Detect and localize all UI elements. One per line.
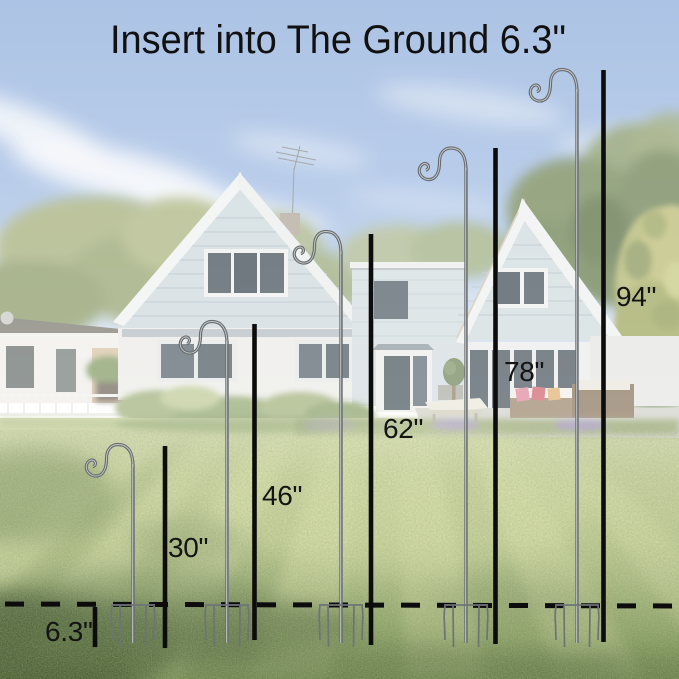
svg-text:30": 30"	[168, 532, 208, 563]
svg-text:46": 46"	[262, 480, 302, 511]
svg-text:6.3": 6.3"	[45, 616, 93, 647]
svg-text:Insert into The Ground 6.3": Insert into The Ground 6.3"	[110, 18, 566, 62]
svg-text:62": 62"	[383, 413, 423, 444]
svg-text:94": 94"	[616, 281, 656, 312]
svg-text:78": 78"	[504, 356, 544, 387]
